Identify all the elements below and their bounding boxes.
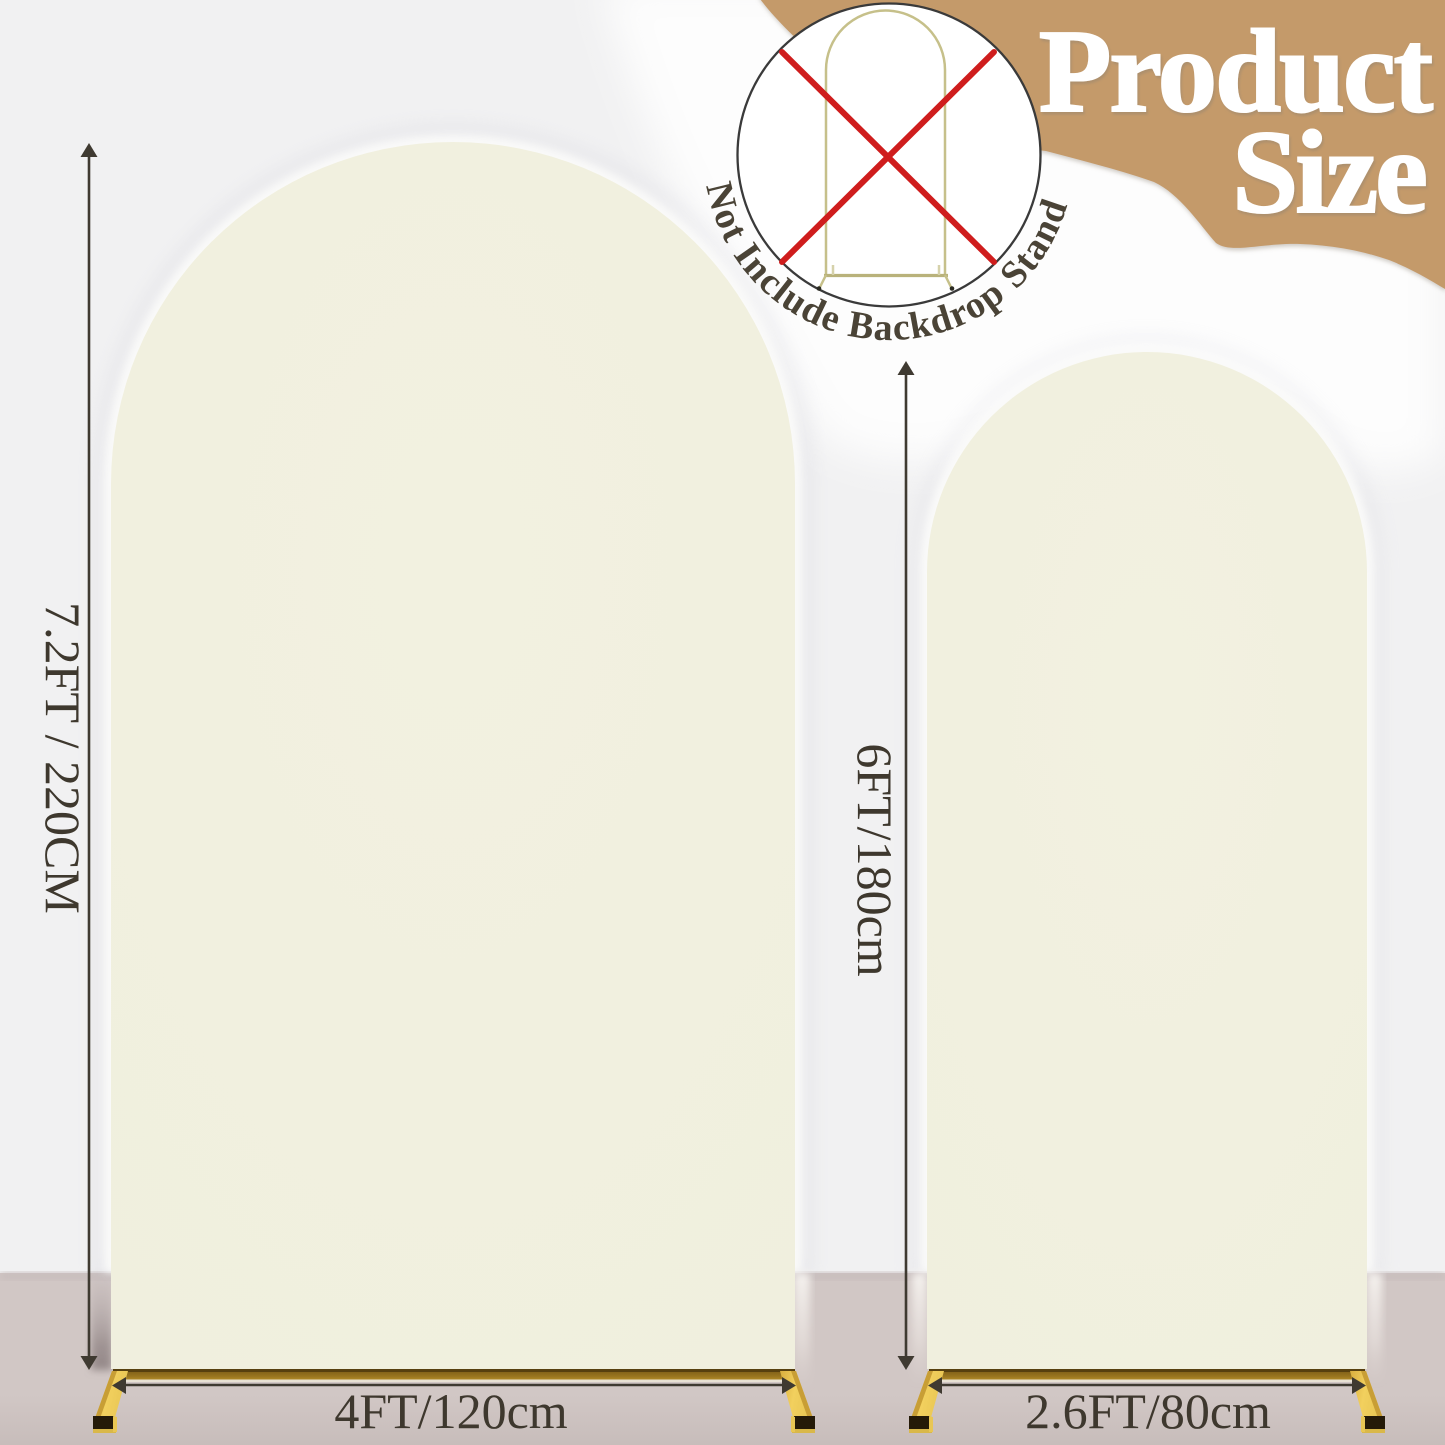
svg-text:6FT/180cm: 6FT/180cm <box>847 743 903 976</box>
svg-text:7.2FT / 220CM: 7.2FT / 220CM <box>35 602 91 914</box>
svg-text:2.6FT/80cm: 2.6FT/80cm <box>1025 1383 1271 1439</box>
svg-text:Size: Size <box>1232 106 1425 238</box>
svg-text:4FT/120cm: 4FT/120cm <box>334 1383 567 1439</box>
